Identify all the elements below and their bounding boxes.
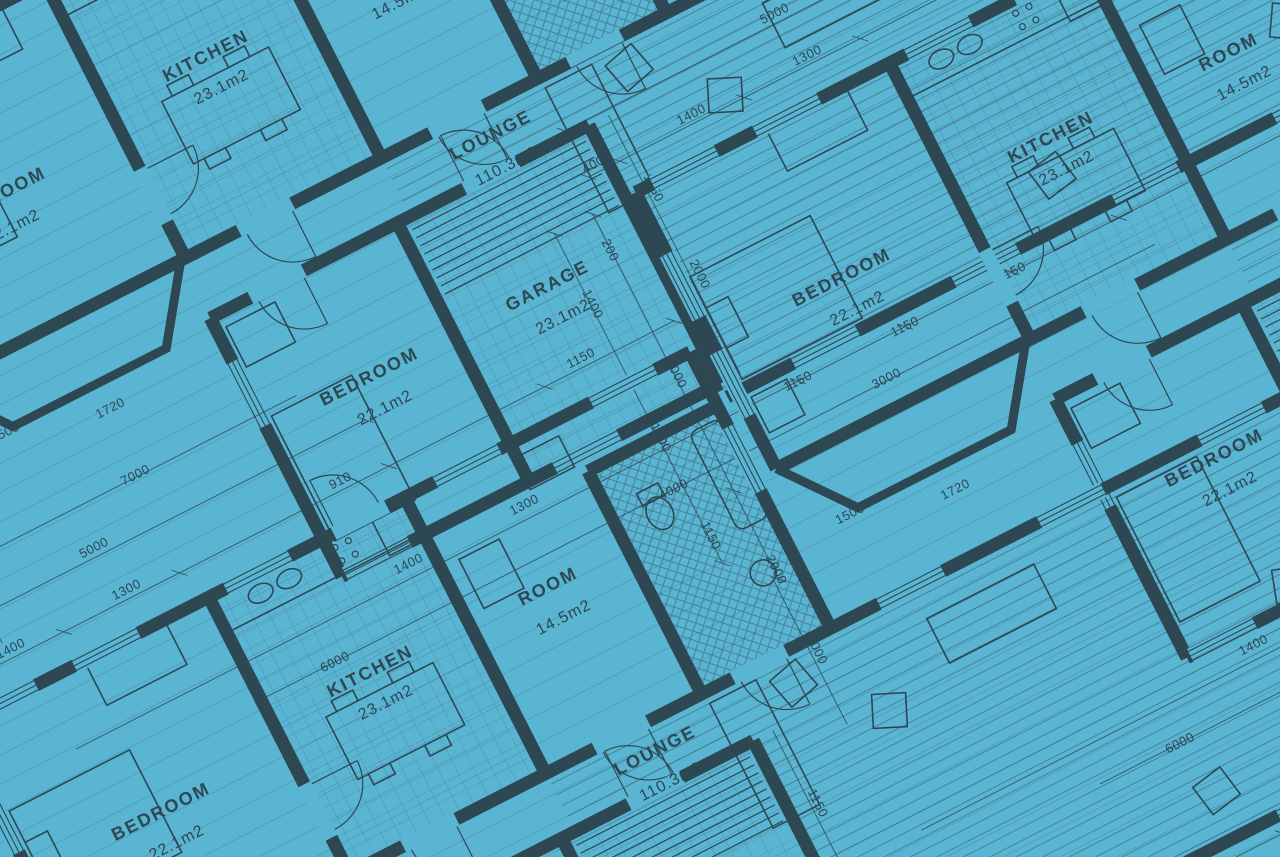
- rotated-plan: BEDROOM 22.1m2 KITCHEN 23.1m2 ROOM 14.5m…: [0, 0, 1280, 857]
- blueprint-screenshot: BEDROOM 22.1m2 KITCHEN 23.1m2 ROOM 14.5m…: [0, 0, 1280, 857]
- blueprint-canvas: BEDROOM 22.1m2 KITCHEN 23.1m2 ROOM 14.5m…: [0, 0, 1280, 857]
